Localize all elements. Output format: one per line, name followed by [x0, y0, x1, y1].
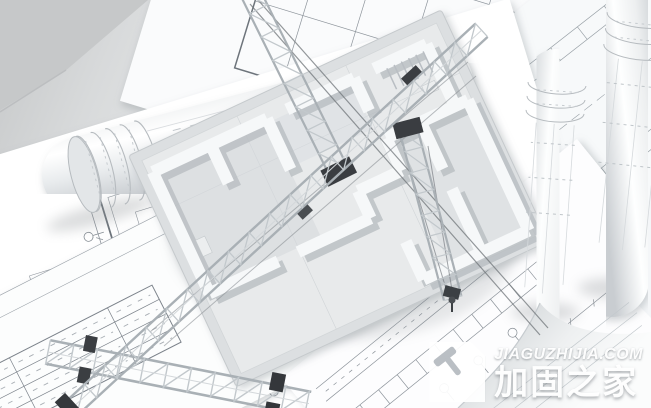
site-logo: [429, 342, 485, 402]
hammer-icon: [429, 342, 469, 382]
site-name: 加固之家: [494, 366, 638, 400]
architectural-render-image: JIAGUZHIJIA.COM 加固之家: [0, 0, 651, 408]
watermark: JIAGUZHIJIA.COM 加固之家: [429, 342, 643, 402]
watermark-text: JIAGUZHIJIA.COM 加固之家: [494, 347, 643, 402]
site-url: JIAGUZHIJIA.COM: [494, 347, 643, 363]
